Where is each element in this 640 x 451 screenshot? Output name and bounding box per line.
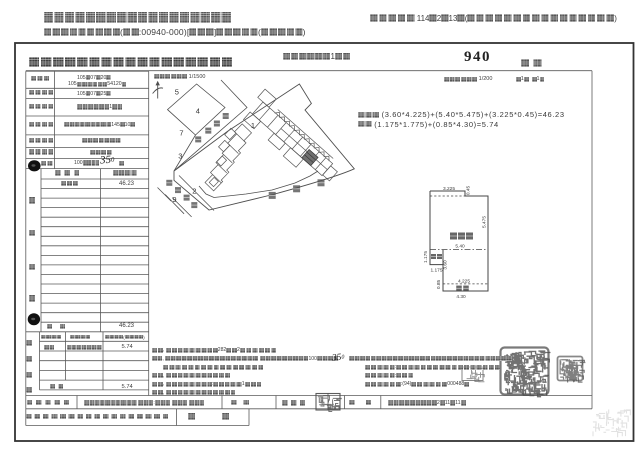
- svg-text:3.60: 3.60: [443, 260, 449, 270]
- svg-text:5.40: 5.40: [455, 244, 465, 250]
- svg-text:0.85: 0.85: [436, 280, 442, 290]
- svg-text:3: 3: [178, 152, 182, 161]
- svg-text:1.175: 1.175: [423, 251, 429, 263]
- svg-text:5: 5: [175, 88, 179, 97]
- svg-text:7: 7: [179, 129, 183, 138]
- svg-text:1: 1: [251, 121, 255, 130]
- svg-text:1.175: 1.175: [430, 268, 442, 274]
- svg-text:4: 4: [196, 107, 200, 116]
- svg-text:4.225: 4.225: [458, 278, 470, 284]
- svg-text:4.30: 4.30: [456, 294, 466, 300]
- svg-text:0.45: 0.45: [466, 186, 472, 196]
- svg-text:9: 9: [172, 195, 176, 204]
- svg-text:2: 2: [192, 187, 196, 196]
- svg-text:5.475: 5.475: [482, 216, 488, 228]
- svg-text:3.225: 3.225: [443, 186, 455, 192]
